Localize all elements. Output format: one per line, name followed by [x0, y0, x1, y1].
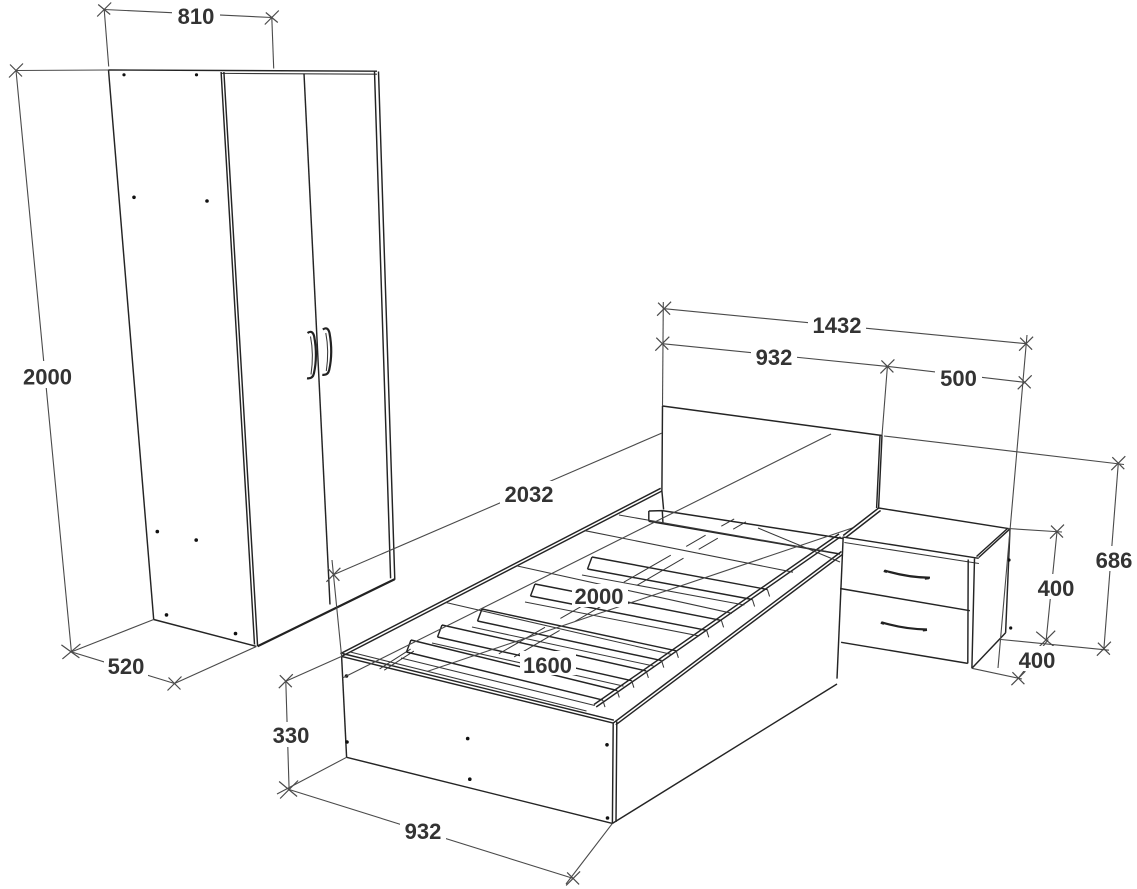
svg-text:932: 932 [405, 819, 442, 844]
svg-text:1432: 1432 [813, 313, 862, 338]
svg-text:330: 330 [273, 723, 310, 748]
svg-text:500: 500 [940, 366, 977, 391]
svg-text:520: 520 [108, 654, 145, 679]
svg-text:686: 686 [1096, 548, 1133, 573]
svg-text:2000: 2000 [23, 365, 72, 390]
svg-text:400: 400 [1038, 576, 1075, 601]
svg-text:400: 400 [1019, 648, 1056, 673]
svg-text:1600: 1600 [523, 653, 572, 678]
svg-text:932: 932 [756, 345, 793, 370]
svg-text:2032: 2032 [505, 482, 554, 507]
svg-text:2000: 2000 [575, 584, 624, 609]
svg-text:810: 810 [178, 4, 215, 29]
